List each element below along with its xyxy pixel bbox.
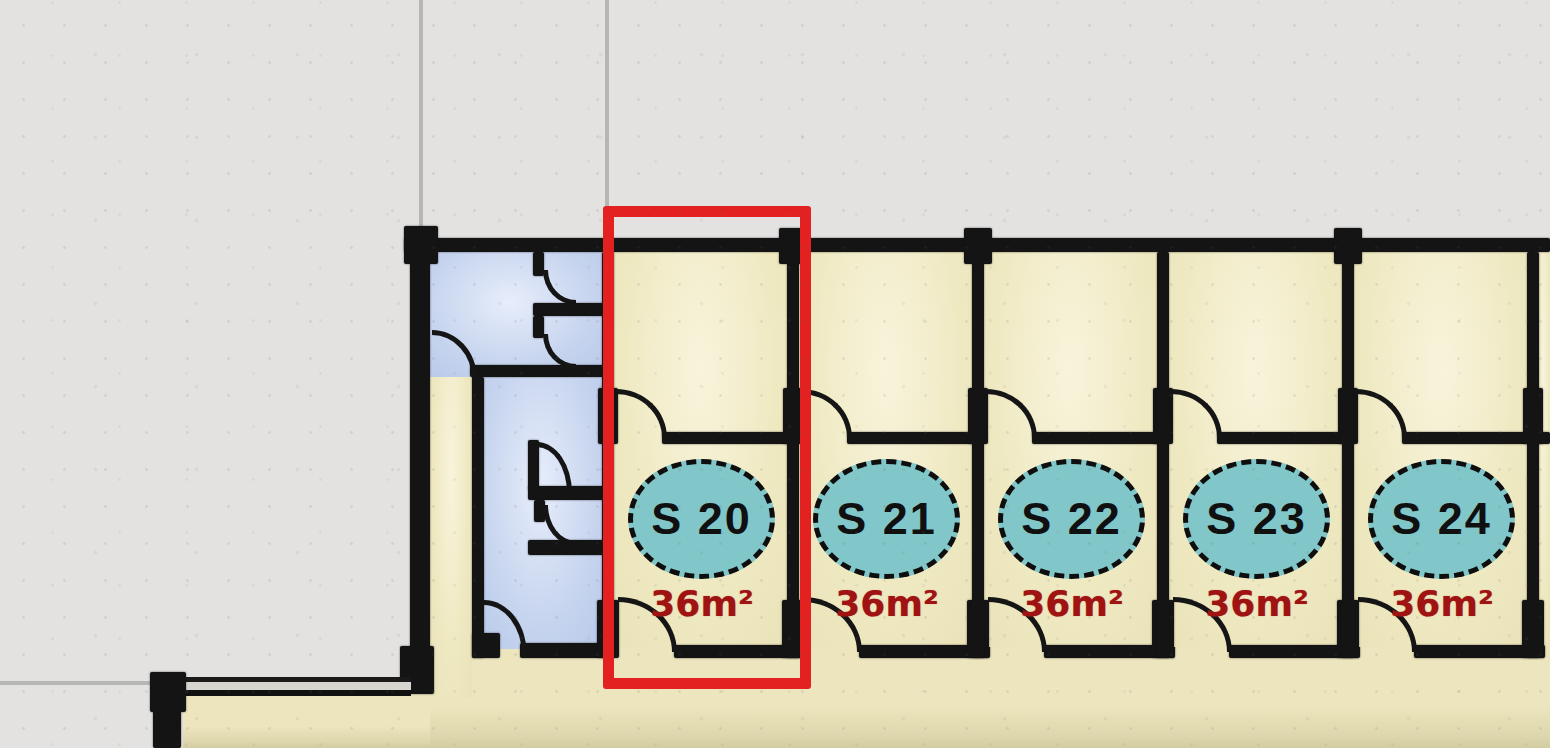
wc-divider-wall-1 (533, 303, 608, 316)
unit-area: 36m² (1181, 583, 1333, 624)
wall-post (964, 228, 992, 264)
unit-label: S 23 (1206, 493, 1307, 545)
corridor-window-wall (183, 677, 411, 696)
corridor-floor-left (183, 693, 430, 748)
utility-mid-wall (470, 365, 608, 377)
grid-line-vertical-2 (605, 0, 609, 209)
unit-s22[interactable]: S 22 36m² (978, 237, 1163, 658)
unit-s24[interactable]: S 24 36m² (1348, 237, 1533, 658)
unit-boundary-wall (1342, 252, 1354, 658)
exterior-left-wall (410, 238, 430, 692)
unit-label: S 24 (1391, 493, 1492, 545)
unit-boundary-wall (972, 252, 984, 658)
wc-divider-wall-2 (528, 486, 608, 500)
unit-label-ellipse[interactable]: S 23 (1183, 459, 1330, 579)
unit-label-ellipse[interactable]: S 21 (813, 459, 960, 579)
selection-highlight-s20 (603, 206, 811, 689)
unit-s23[interactable]: S 23 36m² (1163, 237, 1348, 658)
unit-area: 36m² (1366, 583, 1518, 624)
unit-label: S 21 (836, 493, 937, 545)
unit-label: S 22 (1021, 493, 1122, 545)
unit-boundary-wall (1157, 252, 1169, 658)
floorplan-canvas: S 20 36m² S 21 36m² S 22 36m² S 23 36m² (0, 0, 1550, 748)
exterior-wall-lower (153, 708, 181, 748)
utility-nook-wall (472, 377, 484, 658)
door-jamb (1523, 388, 1543, 444)
unit-s21[interactable]: S 21 36m² (793, 237, 978, 658)
door-jamb (1522, 600, 1544, 658)
unit-boundary-wall (1527, 252, 1539, 658)
next-unit-mid-wall-stub (1543, 432, 1550, 444)
unit-label-ellipse[interactable]: S 22 (998, 459, 1145, 579)
unit-label-ellipse[interactable]: S 24 (1368, 459, 1515, 579)
wc-divider-wall-3 (528, 540, 608, 555)
utility-nook-floor (430, 377, 472, 697)
corridor-floor (430, 645, 1550, 748)
grid-line-horizontal (0, 681, 154, 685)
unit-area: 36m² (811, 583, 963, 624)
grid-line-vertical-1 (419, 0, 423, 238)
wall-post (1334, 228, 1362, 264)
unit-area: 36m² (996, 583, 1148, 624)
corner-post (150, 672, 186, 712)
